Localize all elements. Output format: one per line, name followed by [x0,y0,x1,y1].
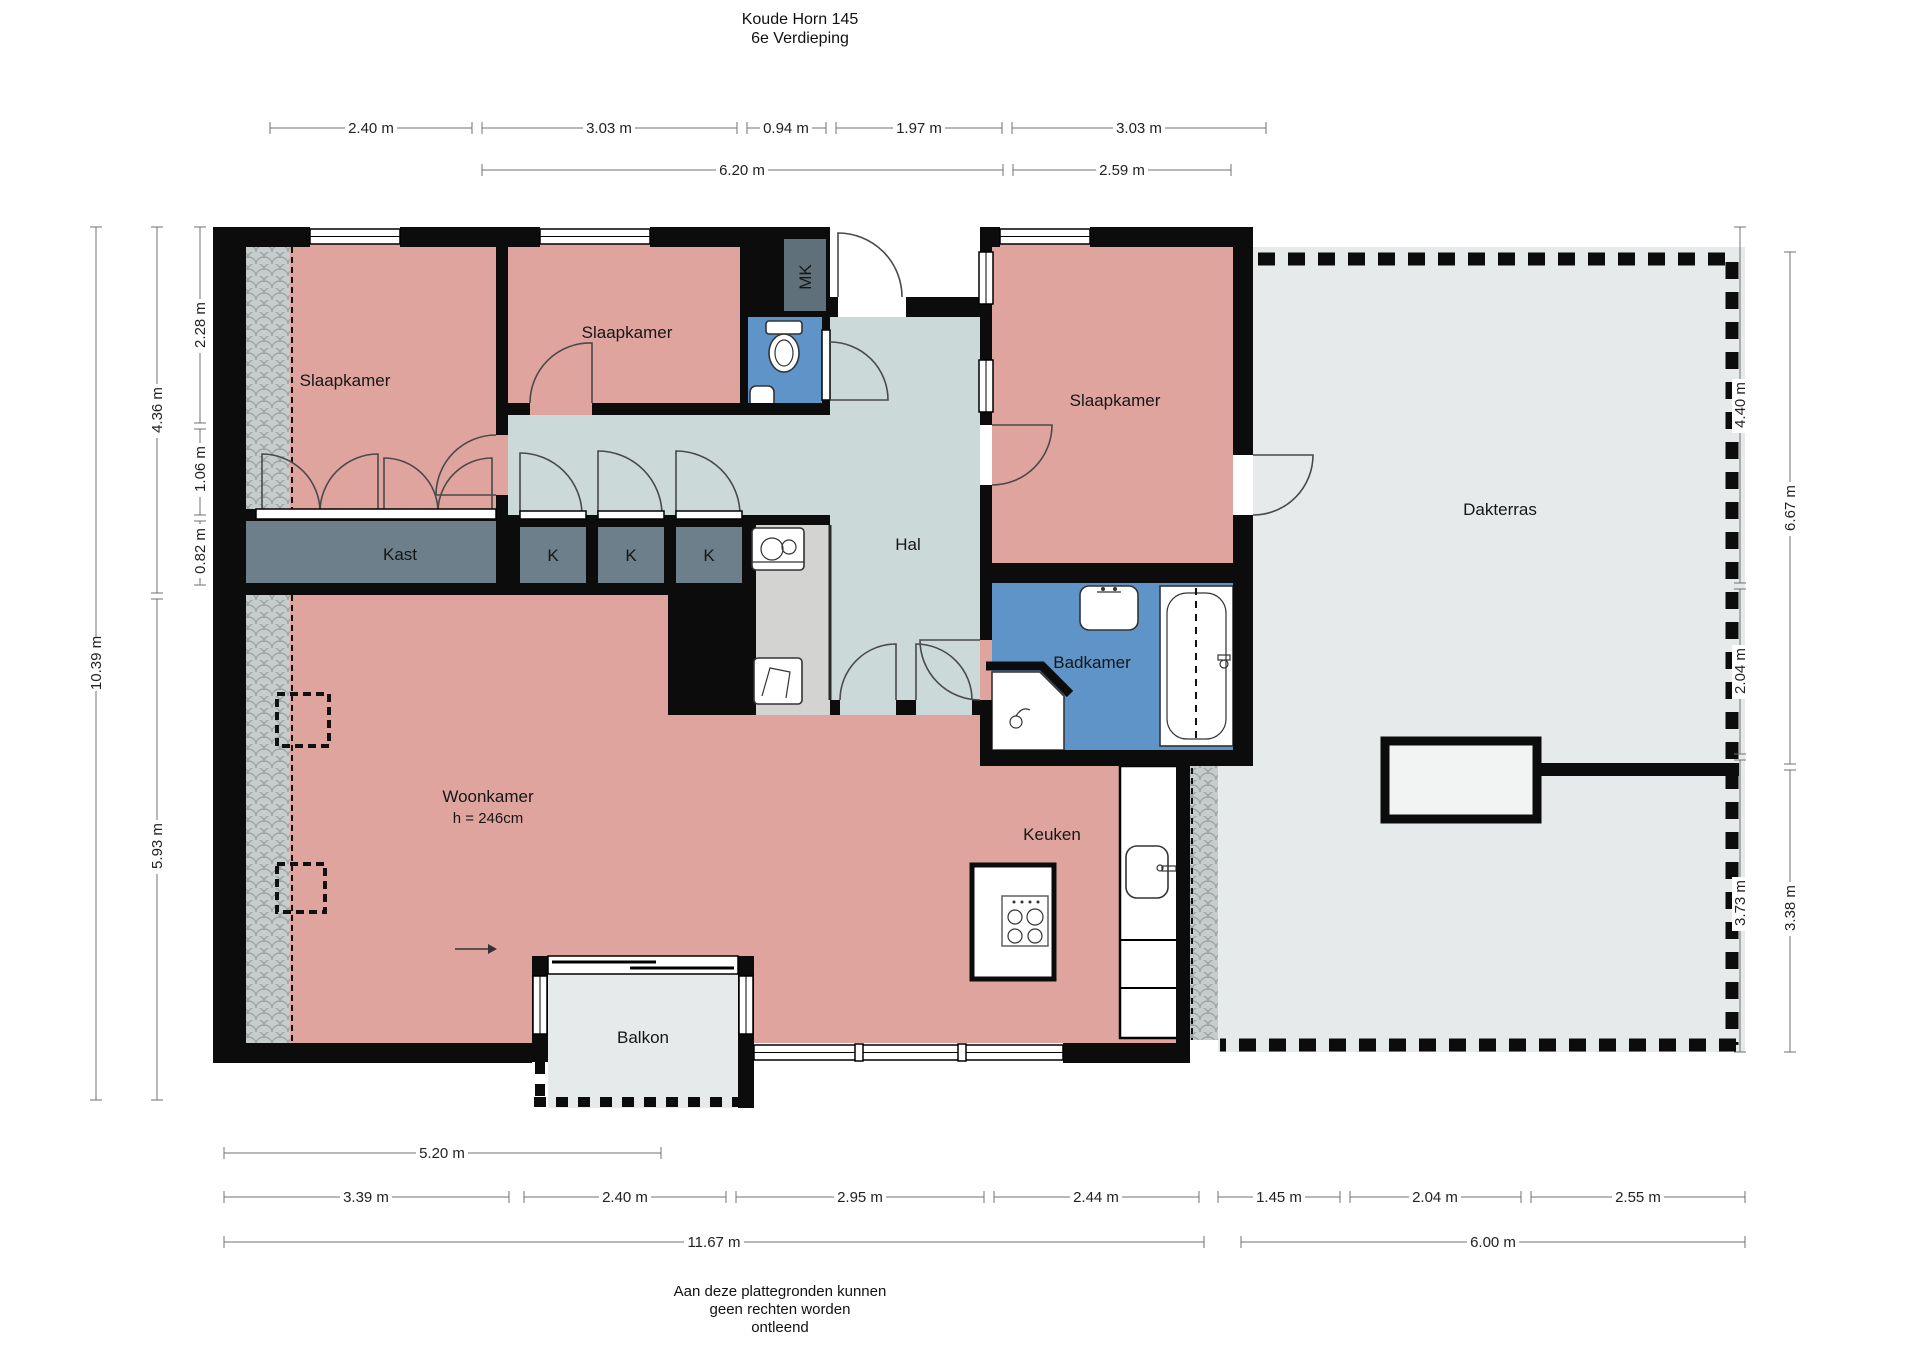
wall-top-2 [400,227,540,247]
dim-label: 0.82 m [192,528,209,574]
window-bedroom-tr [1000,229,1090,244]
dim-label: 3.39 m [343,1189,389,1206]
label-terrace: Dakterras [1463,500,1537,519]
label-bedroom-tl: Slaapkamer [300,371,391,390]
dim-top-row1: 2.40 m 3.03 m 0.94 m 1.97 m 3.03 m [270,120,1266,137]
title-floor: 6e Verdieping [751,30,849,47]
bathtub-icon [1160,586,1233,746]
wall-hall-south-2 [896,700,916,715]
door-entrance [838,233,902,297]
kitchen-counter [1120,766,1178,1038]
dim-label: 6.00 m [1470,1234,1516,1251]
dim-label: 10.39 m [88,636,105,690]
dim-bottom-row3: 11.67 m 6.00 m [224,1234,1745,1251]
dim-label: 6.67 m [1782,485,1799,531]
wall-top-3 [650,227,740,247]
wall-bottom-right [1063,1043,1190,1063]
dim-left-mid: 4.36 m 5.93 m [149,227,166,1100]
hall-floor-corridor [508,415,980,525]
texture-left-bedroom [246,247,290,515]
dim-label: 3.38 m [1782,885,1799,931]
dim-label: 2.40 m [348,120,394,137]
dim-label: 2.44 m [1073,1189,1119,1206]
wall-bed1-right-2 [496,495,508,515]
plan-title: Koude Horn 145 6e Verdieping [742,11,859,47]
dim-label: 2.04 m [1732,648,1749,694]
balcony-sliding-door [548,956,738,974]
wall-right-2 [1233,515,1253,766]
wall-bed3-left-2 [980,304,992,360]
dim-bottom-row2: 3.39 m 2.40 m 2.95 m 2.44 m 1.45 m 2.04 … [224,1189,1745,1206]
title-address: Koude Horn 145 [742,11,859,28]
toilet-icon [766,321,802,372]
wall-bed1-right-1 [496,237,508,435]
wall-right-1 [1233,227,1253,455]
wall-bath-bottom [986,750,1253,766]
k1-door-band [520,511,586,519]
wall-top-5 [1090,227,1253,247]
window-balcony-right [739,976,753,1034]
wall-bed2-bottom-1 [508,403,530,415]
texture-left-living [246,595,290,1043]
label-closet: Kast [383,545,417,564]
label-balcony: Balkon [617,1028,669,1047]
dim-label: 2.95 m [837,1189,883,1206]
dim-left-outer: 10.39 m [88,227,105,1100]
shower-icon [986,666,1070,750]
toilet-door-jamb-top [822,317,830,330]
footer-line-1: Aan deze plattegronden kunnen [674,1283,887,1300]
wall-bed2-bottom-2 [592,403,740,415]
label-bathroom: Badkamer [1053,653,1131,672]
window-living-south [754,1044,1063,1061]
window-bedroom-tl [310,229,400,244]
wall-toilet-left [740,317,748,415]
wall-bottom-left [213,1043,532,1063]
wall-bed3-bottom [986,563,1253,583]
wall-bath-left-1 [980,583,992,640]
dim-label: 1.06 m [192,446,209,492]
window-balcony-left [533,976,547,1034]
bathroom-sink-icon [1080,586,1138,630]
dim-label: 4.36 m [149,387,166,433]
dim-label: 5.20 m [419,1145,465,1162]
dim-label: 1.97 m [896,120,942,137]
terrace-hatch-line [1537,763,1739,776]
floor-plan-svg: Koude Horn 145 6e Verdieping [0,0,1920,1358]
dim-label: 2.59 m [1099,162,1145,179]
label-hall: Hal [895,535,921,554]
dim-label: 1.45 m [1256,1189,1302,1206]
footer-line-2: geen rechten worden [710,1301,851,1318]
label-living: Woonkamer [442,787,534,806]
label-k3: K [703,546,715,565]
label-k1: K [547,546,559,565]
mk-toilet-block [740,227,830,415]
label-kitchen: Keuken [1023,825,1081,844]
dim-label: 3.03 m [586,120,632,137]
dim-label: 5.93 m [149,823,166,869]
label-bedroom-tm: Slaapkamer [582,323,673,342]
dim-label: 2.04 m [1412,1189,1458,1206]
wall-toilet-bottom [740,403,830,415]
wall-left-exterior [213,227,246,1063]
dim-label: 11.67 m [687,1234,740,1251]
dim-label: 3.73 m [1732,880,1749,926]
dim-bottom-row1: 5.20 m [224,1145,661,1162]
wall-bed3-left-3 [980,412,992,425]
dim-label: 2.55 m [1615,1189,1661,1206]
dim-right-outer: 6.67 m 3.38 m [1782,252,1799,1052]
label-k2: K [625,546,637,565]
tech-closet-top-wall [756,515,830,525]
dim-label: 0.94 m [763,120,809,137]
footer-disclaimer: Aan deze plattegronden kunnen geen recht… [674,1283,887,1336]
wall-hall-south-1 [830,700,840,715]
footer-line-3: ontleend [751,1319,809,1336]
dim-label: 2.40 m [602,1189,648,1206]
label-bedroom-tr: Slaapkamer [1070,391,1161,410]
texture-kitchen-right [1190,758,1218,1040]
dim-left-inner: 2.28 m 1.06 m 0.82 m [192,227,209,585]
dim-label: 2.28 m [192,302,209,348]
closet-floor [246,521,496,583]
terrace-roof-hatch [1385,741,1537,819]
dim-label: 6.20 m [719,162,765,179]
dim-label: 4.40 m [1732,382,1749,428]
wall-kitchen-right [1176,750,1190,1063]
wall-hall-south-3 [972,700,992,715]
terrace-floor [1218,247,1745,1052]
k3-door-band [676,511,742,519]
window-bed3-side-1 [979,252,993,304]
window-bed3-side-2 [979,360,993,412]
dim-top-row2: 6.20 m 2.59 m [482,162,1231,179]
closet-door-band [256,509,496,519]
label-mk: MK [796,264,815,290]
window-bedroom-tm [540,229,650,244]
toilet-door-band [822,330,830,400]
k2-door-band [598,511,664,519]
stove-icon [1002,896,1048,946]
label-living-height: h = 246cm [453,810,523,827]
dim-label: 3.03 m [1116,120,1162,137]
floorplan-page: Koude Horn 145 6e Verdieping [0,0,1920,1358]
wall-bed3-left-1 [980,227,992,252]
washer-icon [752,528,804,570]
dryer-sketch-icon [754,658,802,704]
wall-top-1 [213,227,310,247]
wall-recess-1 [830,297,838,317]
shaft [668,595,756,715]
